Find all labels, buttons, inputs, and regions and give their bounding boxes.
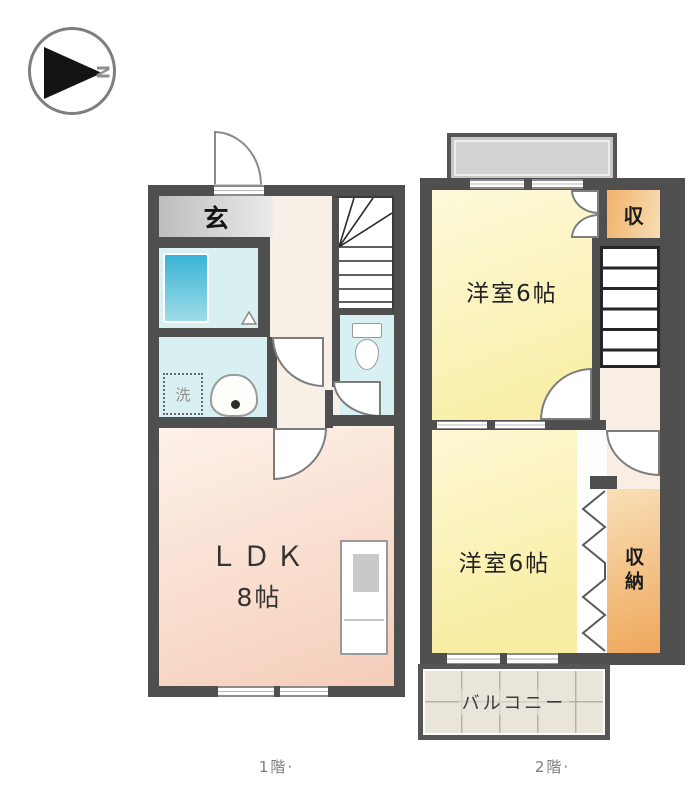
entrance-door-swing: [214, 131, 262, 185]
ldk-label-line1: ＬＤＫ: [179, 535, 339, 575]
roof-structure-inner: [454, 140, 610, 176]
folding-door-zigzag-icon: [577, 489, 607, 653]
bath-door-mark-icon: [241, 311, 257, 325]
washing-machine-area: 洗: [163, 373, 203, 415]
roof-structure: [447, 133, 617, 183]
bedroom-divider-slit-right: [495, 421, 545, 429]
compass-letter: N: [92, 65, 112, 79]
washroom: 洗: [159, 337, 267, 417]
kitchen-counter: [340, 540, 388, 655]
wall-right-overlay: [660, 190, 673, 653]
wall-bath-washroom: [159, 328, 258, 337]
floor1-plan: 玄: [148, 185, 405, 697]
kitchen-counter-divider: [344, 619, 384, 621]
ldk-window-right: [280, 686, 328, 697]
toilet-bowl: [355, 339, 379, 370]
wall-left-of-toilet: [332, 315, 340, 387]
stairs-1f: [332, 196, 394, 315]
balcony: バルコニー: [418, 664, 610, 740]
ldk-window-left: [218, 686, 274, 697]
storage-folding-door: [577, 489, 607, 653]
laundry-label: 洗: [175, 384, 190, 405]
entrance-door-sill: [214, 185, 264, 196]
bedroom-bottom-label: 洋室6帖: [432, 546, 577, 576]
balcony-label: バルコニー: [459, 689, 570, 715]
wall-left-of-closet: [599, 190, 607, 238]
wall-right-of-bathroom: [258, 237, 270, 337]
closet: 収: [607, 190, 660, 238]
floor1-caption: 1階·: [148, 756, 405, 777]
storage-label: 収納: [620, 547, 647, 595]
stairs-1f-treads-icon: [339, 198, 392, 308]
toilet-tank: [352, 323, 382, 338]
floor2-caption: 2階·: [420, 756, 685, 777]
bedroom-bottom: [432, 430, 577, 653]
washbasin: [210, 374, 258, 417]
closet-label: 収: [624, 200, 644, 229]
bathtub: [163, 253, 209, 323]
floorplan-page: N 玄: [0, 0, 695, 800]
wall-stub-storage-top: [590, 476, 617, 489]
wall-under-entrance: [159, 237, 270, 248]
entrance-room: 玄: [159, 196, 273, 237]
wall-ldk-north-left: [159, 417, 273, 428]
kitchen-sink: [353, 554, 379, 592]
wall-ldk-north-right: [327, 415, 394, 426]
stairs-2f: [600, 246, 660, 368]
washbasin-drain: [231, 400, 240, 409]
wall-left-of-stairs: [592, 238, 600, 420]
entrance-label: 玄: [203, 199, 228, 235]
bathroom: [159, 248, 258, 328]
ldk-label: ＬＤＫ 8帖: [179, 535, 339, 614]
bedroom-top-label: 洋室6帖: [432, 276, 592, 306]
bedroom-top-window-left: [470, 179, 524, 189]
bedroom-divider-slit-left: [437, 421, 487, 429]
wall-under-closet: [592, 238, 660, 246]
bedroom-top-window-right: [532, 179, 583, 189]
storage: 収納: [607, 489, 660, 653]
balcony-label-wrap: バルコニー: [423, 669, 605, 735]
compass: N: [28, 27, 116, 115]
floor2-plan: 洋室6帖 収 洋室6帖: [420, 178, 685, 665]
ldk-label-line2: 8帖: [179, 578, 339, 614]
